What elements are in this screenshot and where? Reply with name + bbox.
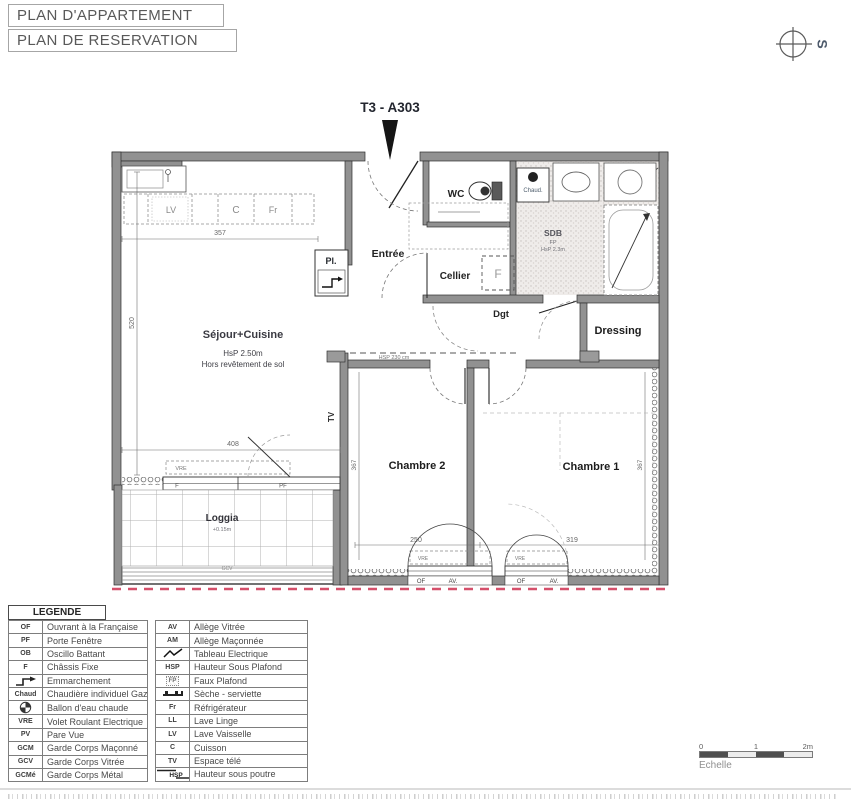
dim-319: 319 (566, 537, 578, 544)
window-of-label: OF (417, 579, 426, 585)
apartment-arrow (382, 120, 398, 160)
scale-ticks: 0 1 2m (699, 742, 813, 751)
window-vre-label: VRE (418, 556, 429, 562)
chassis-fixe-label: F (494, 267, 501, 281)
legend-label: Pare Vue (43, 728, 148, 741)
cuisson-label: C (232, 205, 239, 216)
dim-367-left: 367 (351, 459, 358, 470)
chambre1-door (489, 368, 526, 404)
tableau-electrique-icon (162, 648, 184, 659)
legend-label: Volet Roulant Electrique (43, 715, 148, 728)
legend-row: GCVGarde Corps Vitrée (9, 755, 148, 768)
dim-408: 408 (227, 441, 239, 448)
legend-abbr: GCV (9, 755, 43, 768)
room-label-wc: WC (448, 189, 465, 200)
legend-row: Emmarchement (9, 674, 148, 687)
legend-label: Hauteur Sous Plafond (190, 661, 308, 674)
wall-radiator-right (580, 351, 599, 362)
legend-row: VREVolet Roulant Electrique (9, 715, 148, 728)
scale-bar: 0 1 2m Echelle (699, 742, 813, 771)
compass-icon (776, 27, 812, 61)
scale-label: Echelle (699, 760, 813, 771)
tv-label: TV (327, 411, 336, 422)
shower-icon (604, 205, 658, 295)
legend-abbr: VRE (9, 715, 43, 728)
legend-label: Sèche - serviette (190, 687, 308, 700)
scale-tick-2m: 2m (803, 742, 813, 751)
placard-block: Pl. (315, 250, 348, 296)
legend-label: Allège Vitrée (190, 621, 308, 634)
room-label-entree: Entrée (372, 248, 405, 260)
legend-abbr: PV (9, 728, 43, 741)
legend-abbr: OF (9, 621, 43, 634)
legend-label: Tableau Electrique (190, 647, 308, 660)
legend-abbr: GCMé (9, 768, 43, 781)
emmarchement-step-icon (14, 675, 38, 687)
window-av-label: AV. (550, 579, 559, 585)
ballon-eau-chaude-icon (19, 701, 32, 714)
legend-table-right: AVAllège Vitrée AMAllège Maçonnée Tablea… (155, 620, 308, 782)
window-f-label: F (175, 484, 179, 490)
dim-367-right: 367 (637, 459, 644, 470)
kitchen-block: LV C Fr (122, 166, 314, 224)
legend-row: Tableau Electrique (156, 647, 308, 660)
room-note-sdb-hsp: HsP 2.3m (541, 247, 565, 253)
legend-label: Oscillo Battant (43, 647, 148, 660)
legend-label: Lave Vaisselle (190, 728, 308, 741)
legend-abbr: AM (156, 634, 190, 647)
window-vre-label: VRE (175, 466, 187, 472)
legend-abbr: OB (9, 647, 43, 660)
wall-radiator-left (327, 351, 345, 362)
chassis-fixe-box: F (482, 256, 514, 290)
scale-tick-0: 0 (699, 742, 703, 751)
washbasin-icon (553, 163, 599, 201)
room-note-sejour-hsp: HsP 2.50m (223, 349, 263, 358)
legend-row: Ballon d'eau chaude (9, 701, 148, 715)
dim-520: 520 (129, 317, 136, 329)
legend-row: HSPHauteur Sous Plafond (156, 661, 308, 674)
legend-abbr: Fr (156, 701, 190, 714)
legend-label: Réfrigérateur (190, 701, 308, 714)
room-label-sejour: Séjour+Cuisine (203, 329, 283, 341)
legend-label: Porte Fenêtre (43, 634, 148, 647)
legend-row: LVLave Vaisselle (156, 728, 308, 741)
legend-abbr: HSP (156, 661, 190, 674)
lave-vaisselle-label: LV (166, 205, 176, 215)
chaudiere-label: Chaud. (523, 188, 543, 194)
legend-row: AVAllège Vitrée (156, 621, 308, 634)
legend-row: FChâssis Fixe (9, 661, 148, 674)
scale-bar-segments (699, 751, 813, 758)
window-of-label: OF (517, 579, 526, 585)
loggia-block: GCV (122, 490, 333, 584)
chambre2-door (430, 368, 465, 404)
window-pf-label: PF (279, 484, 287, 490)
legend-label: Ouvrant à la Française (43, 621, 148, 634)
room-label-chambre1: Chambre 1 (563, 461, 620, 473)
legend-abbr: Chaud (9, 687, 43, 700)
legend-label: Garde Corps Maçonné (43, 742, 148, 755)
legend-row: ChaudChaudière individuel Gaz (9, 687, 148, 700)
legend-row: GCMéGarde Corps Métal (9, 768, 148, 781)
legend-row: OBOscillo Battant (9, 647, 148, 660)
bottom-divider (0, 788, 851, 790)
room-label-loggia: Loggia (206, 513, 239, 524)
apartment-label: T3 - A303 (360, 100, 420, 115)
legend-row: PVPare Vue (9, 728, 148, 741)
dim-250: 250 (410, 537, 422, 544)
legend-label: Emmarchement (43, 674, 148, 687)
legend-label: Allège Maçonnée (190, 634, 308, 647)
legend-abbr: PF (9, 634, 43, 647)
legend-row: PFPorte Fenêtre (9, 634, 148, 647)
window-vre-label: VRE (515, 556, 526, 562)
legend-label: Hauteur sous poutre (190, 768, 308, 781)
legend-abbr: GCM (9, 742, 43, 755)
dim-357: 357 (214, 230, 226, 237)
chaudiere-box: Chaud. (517, 168, 549, 202)
legend-abbr: TV (156, 754, 190, 767)
legend-abbr: C (156, 741, 190, 754)
beam-label: HSP 230 cm (379, 355, 410, 361)
faux-plafond-icon: FP (166, 676, 180, 686)
legend-label: Garde Corps Métal (43, 768, 148, 781)
legend-row: FP Faux Plafond (156, 674, 308, 687)
legend-label: Chaudière individuel Gaz (43, 687, 148, 700)
sejour-window: F PF VRE (163, 435, 340, 490)
room-note-sejour-sol: Hors revêtement de sol (202, 360, 285, 369)
room-label-cellier: Cellier (440, 271, 471, 282)
legend-row: AMAllège Maçonnée (156, 634, 308, 647)
legend-row: LLLave Linge (156, 714, 308, 727)
legend-table-left: OFOuvrant à la Française PFPorte Fenêtre… (8, 620, 148, 782)
legend-label: Cuisson (190, 741, 308, 754)
room-label-dressing: Dressing (594, 325, 641, 337)
chambre1-window: VRE OF AV. (505, 535, 568, 585)
legend-abbr: LL (156, 714, 190, 727)
scale-tick-1: 1 (754, 742, 758, 751)
legend-abbr: F (9, 661, 43, 674)
seche-serviette-icon (161, 689, 185, 699)
room-label-chambre2: Chambre 2 (389, 460, 446, 472)
room-note-loggia: +0.15m (213, 527, 232, 533)
room-label-sdb: SDB (544, 228, 562, 238)
room-label-dgt: Dgt (493, 309, 510, 320)
legend-row: CCuisson (156, 741, 308, 754)
legend-row: GCMGarde Corps Maçonné (9, 742, 148, 755)
room-note-sdb-fp: FP (549, 240, 556, 246)
gcv-label: GCV (222, 566, 234, 572)
legend-label: Lave Linge (190, 714, 308, 727)
entrance-door (368, 161, 418, 211)
legend-label: Faux Plafond (190, 674, 308, 687)
legend-row: HSP Hauteur sous poutre (156, 768, 308, 781)
window-av-label: AV. (449, 579, 458, 585)
legend-label: Garde Corps Vitrée (43, 755, 148, 768)
chambre2-window: VRE OF AV. (408, 524, 492, 585)
legend-row: TVEspace télé (156, 754, 308, 767)
legend-abbr: LV (156, 728, 190, 741)
legend-label: Ballon d'eau chaude (43, 701, 148, 715)
dgt-door-arc (433, 306, 478, 351)
legend-label: Châssis Fixe (43, 661, 148, 674)
legend-row: FrRéfrigérateur (156, 701, 308, 714)
hauteur-sous-poutre-icon: HSP (156, 768, 190, 780)
washing-machine-icon (604, 163, 656, 201)
placard-label: Pl. (325, 256, 336, 266)
legend-row: OFOuvrant à la Française (9, 621, 148, 634)
sdb-door (539, 301, 577, 339)
legend-row: Sèche - serviette (156, 687, 308, 700)
refrigerateur-label: Fr (269, 205, 278, 215)
legend-title: LEGENDE (8, 605, 106, 620)
floor-plan-page: PLAN D'APPARTEMENT PLAN DE RESERVATION S (0, 0, 851, 800)
legend-label: Espace télé (190, 754, 308, 767)
toilet-icon (469, 182, 502, 200)
svg-text:HSP: HSP (169, 772, 183, 779)
clipped-disclaimer-text (8, 794, 836, 799)
compass-label: S (814, 39, 830, 48)
legend-abbr: AV (156, 621, 190, 634)
